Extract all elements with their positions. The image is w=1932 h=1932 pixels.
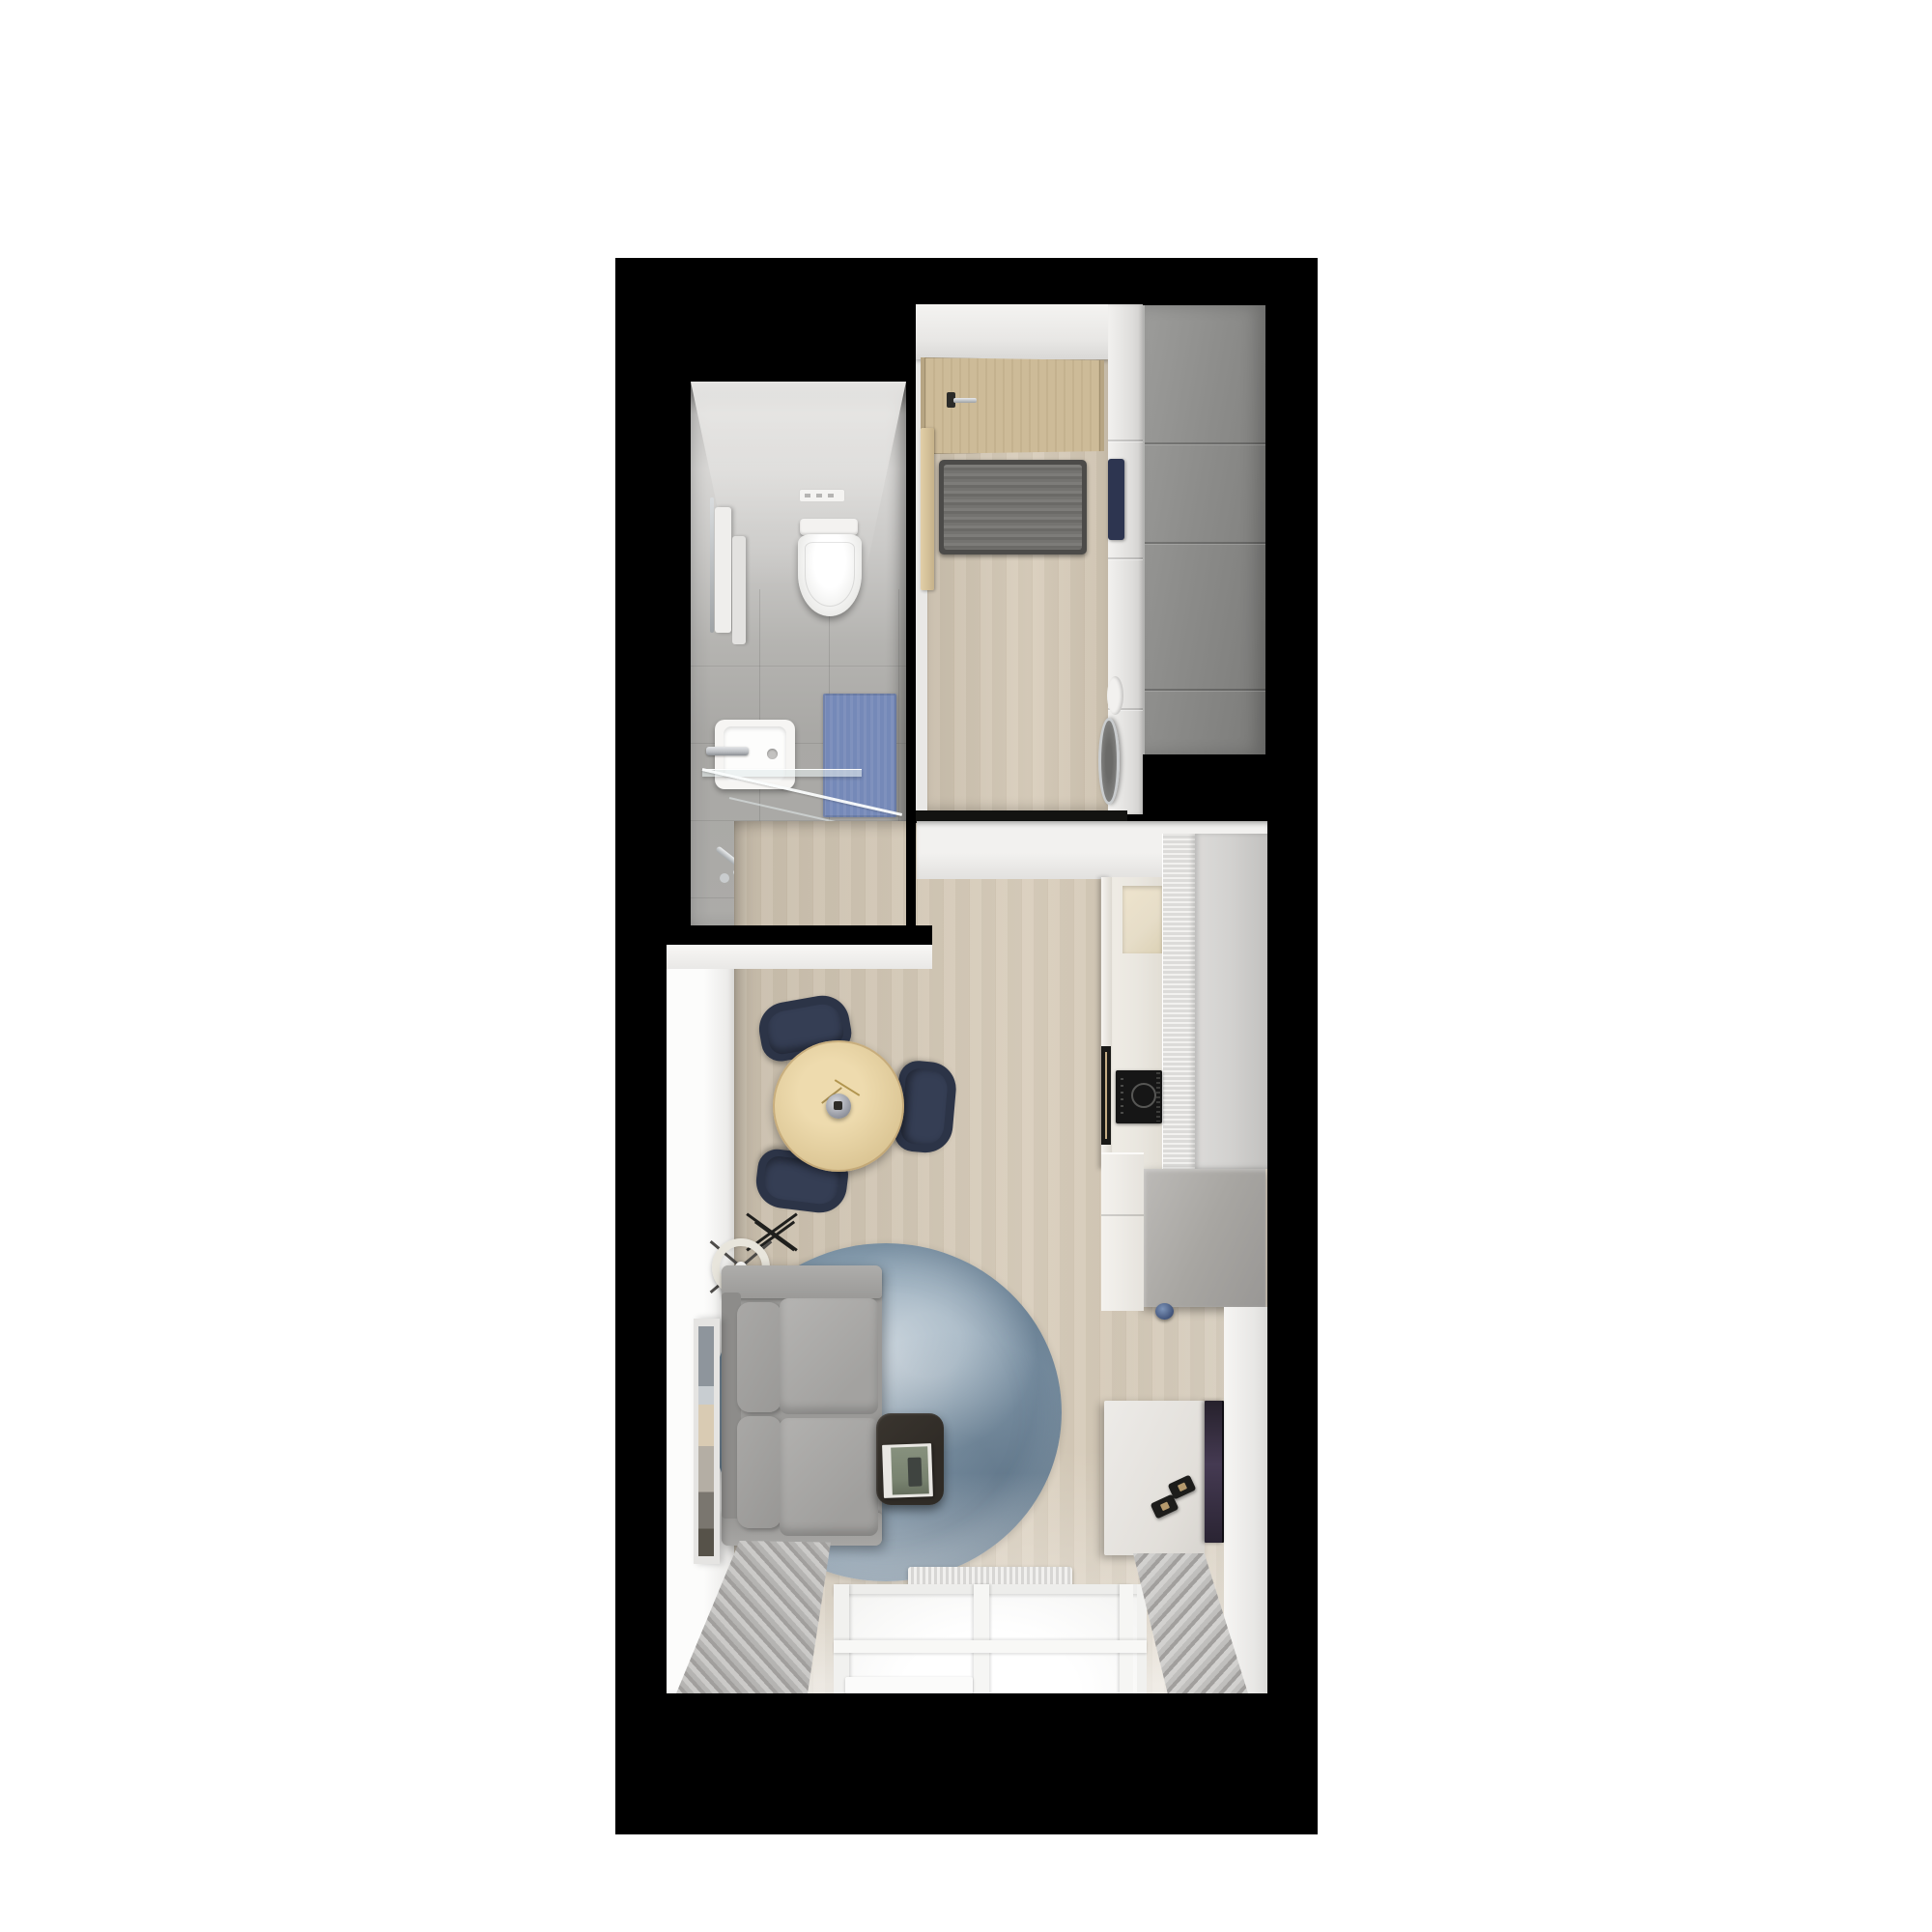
window-mullion	[834, 1640, 1147, 1653]
induction-cooktop	[1116, 1070, 1162, 1123]
window-sill	[845, 1677, 973, 1693]
kitchen-peninsula-front	[1101, 1152, 1144, 1311]
page-canvas	[0, 0, 1932, 1932]
sofa-seat-cushion	[780, 1298, 878, 1414]
door-handle	[947, 392, 978, 409]
basin-faucet	[706, 747, 749, 755]
bench-cushion	[1108, 459, 1124, 540]
wardrobe	[1143, 305, 1265, 754]
window-mullion	[1120, 1584, 1133, 1693]
dining-table	[773, 1040, 904, 1172]
entry-wall-top	[916, 304, 1109, 359]
doormat	[939, 460, 1087, 554]
leaning-artwork	[694, 1319, 720, 1564]
sofa-armrest	[722, 1265, 882, 1298]
wall-right-face	[1224, 1307, 1267, 1693]
towel	[715, 507, 731, 633]
vase	[826, 1094, 851, 1119]
cabinet-handle-strip	[1101, 1046, 1111, 1145]
door-jamb	[921, 428, 934, 590]
window-frame	[834, 1584, 1147, 1594]
toilet-tank	[800, 519, 858, 535]
fluted-cabinet	[1162, 834, 1195, 1169]
kitchen-tall-panel	[1195, 834, 1267, 1169]
apartment-floor-plan	[615, 258, 1318, 1834]
towel	[732, 536, 746, 644]
wall-bathroom-bottom	[615, 925, 932, 945]
counter-niche	[1122, 886, 1162, 953]
sofa	[722, 1265, 882, 1546]
towel-rail	[710, 497, 714, 633]
washing-machine-door	[1098, 718, 1120, 805]
magazine	[882, 1443, 933, 1498]
sofa-back-cushion	[737, 1416, 781, 1528]
kitchen-peninsula-top	[1143, 1169, 1265, 1307]
wall-bathroom-bottom-face	[667, 945, 932, 969]
tv-screen	[1205, 1401, 1224, 1543]
window-mullion	[974, 1584, 989, 1693]
washer-detergent-drawer	[1107, 676, 1123, 715]
ceiling-vent	[799, 489, 845, 502]
kettle	[1155, 1303, 1174, 1320]
side-table	[876, 1413, 944, 1505]
sofa-back-cushion	[737, 1302, 781, 1412]
toilet	[798, 534, 862, 616]
wall-bathroom-hall	[906, 258, 916, 945]
sofa-seat-cushion	[780, 1418, 878, 1536]
